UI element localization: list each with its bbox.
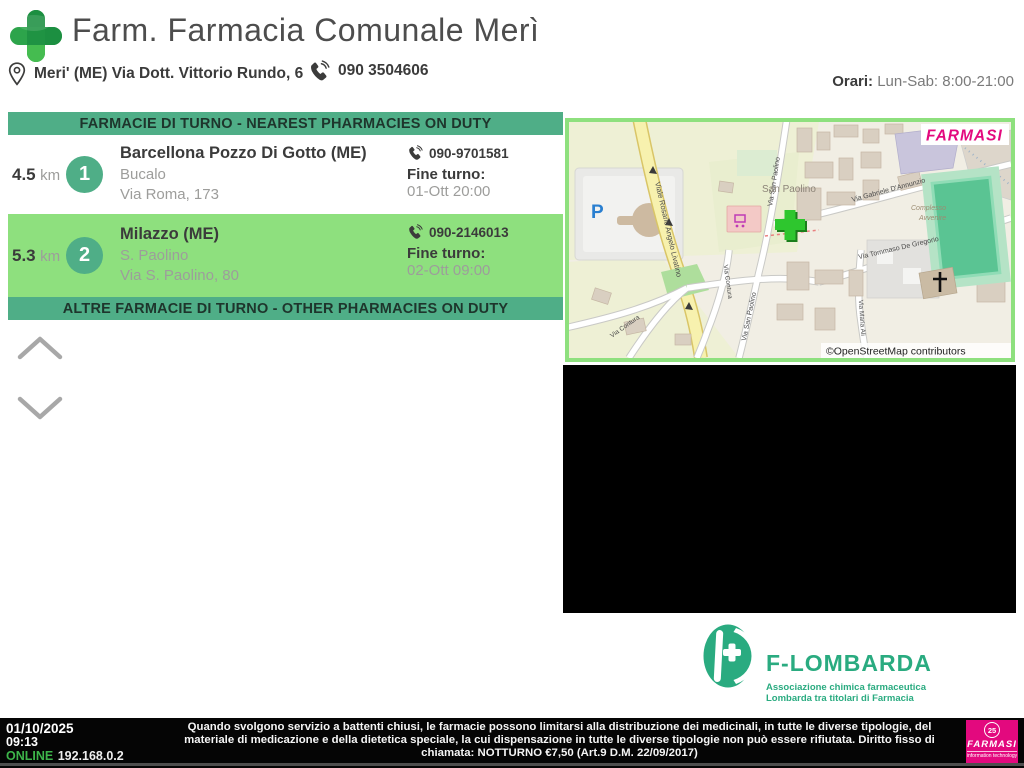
pharmacy-address: Meri' (ME) Via Dott. Vittorio Rundo, 6 (34, 65, 303, 83)
association-subtitle-1: Associazione chimica farmaceutica (766, 682, 932, 693)
online-status: ONLINE (6, 749, 53, 763)
svg-text:©OpenStreetMap contributors: ©OpenStreetMap contributors (826, 346, 966, 358)
phone-icon (308, 60, 330, 82)
fine-turno-label: Fine turno: (407, 166, 563, 183)
page-title: Farm. Farmacia Comunale Merì (72, 12, 539, 49)
scroll-up-button[interactable] (10, 332, 70, 366)
pharmacy-row-2[interactable]: 5.3 km 2 Milazzo (ME) S. Paolino Via S. … (8, 214, 563, 297)
distance: 4.5 km (8, 165, 66, 185)
association-subtitle-2: Lombarda tra titolari di Farmacia (766, 693, 932, 704)
hours-label: Orari: (832, 73, 873, 90)
f-lombarda-logo: F-LOMBARDA Associazione chimica farmaceu… (703, 624, 932, 704)
on-duty-pharmacies-panel: FARMACIE DI TURNO - NEAREST PHARMACIES O… (8, 112, 563, 320)
brand-name: FARMASI (967, 739, 1017, 750)
brand-tagline: information technology (967, 751, 1017, 759)
pharmacy-street: Via S. Paolino, 80 (120, 266, 407, 286)
svg-text:FARMASI: FARMASI (926, 128, 1003, 145)
map-attribution: ©OpenStreetMap contributors (821, 343, 1011, 358)
ip-address: 192.168.0.2 (58, 749, 124, 763)
map: P (565, 118, 1015, 362)
pharmacy-street: Via Roma, 173 (120, 185, 407, 205)
svg-text:Complesso: Complesso (911, 205, 946, 212)
anniversary-badge: 25 (984, 722, 1000, 738)
f-lombarda-oval-icon (703, 624, 753, 688)
parking-label: P (591, 202, 604, 223)
map-place-label: San Paolino (762, 184, 816, 195)
chevron-up-icon (17, 335, 63, 361)
pharmacy-name: Bucalo (120, 165, 407, 185)
pharmacy-phone: 090-9701581 (429, 146, 509, 161)
pharmacy-cross-logo (8, 8, 64, 64)
video-placeholder (563, 365, 1016, 613)
chevron-down-icon (17, 395, 63, 421)
farmasi-logo: 25 FARMASI information technology (966, 720, 1018, 765)
phone-icon (407, 145, 423, 161)
hours-value: Lun-Sab: 8:00-21:00 (877, 73, 1014, 90)
location-pin-icon (8, 62, 26, 86)
fine-turno-label: Fine turno: (407, 245, 563, 262)
other-pharmacies-header: ALTRE FARMACIE DI TURNO - OTHER PHARMACI… (8, 297, 563, 320)
phone-icon (407, 224, 423, 240)
rank-badge: 1 (66, 156, 103, 193)
pharmacy-phone: 090-2146013 (429, 225, 509, 240)
association-name: F-LOMBARDA (766, 650, 932, 677)
svg-text:Avvenire: Avvenire (918, 215, 946, 222)
map-supermarket (727, 206, 761, 232)
map-watermark: FARMASI (921, 124, 1009, 145)
distance: 5.3 km (8, 246, 66, 266)
header: Farm. Farmacia Comunale Merì Meri' (ME) … (0, 0, 1024, 104)
status-time: 09:13 (6, 736, 124, 750)
rank-badge: 2 (66, 237, 103, 274)
bottom-divider (0, 763, 1024, 766)
pharmacy-city: Milazzo (ME) (120, 225, 407, 244)
map-church (919, 267, 957, 299)
pharmacy-name: S. Paolino (120, 246, 407, 266)
openstreetmap-canvas: P (569, 122, 1011, 358)
nearest-pharmacies-header: FARMACIE DI TURNO - NEAREST PHARMACIES O… (8, 112, 563, 135)
pharmacy-city: Barcellona Pozzo Di Gotto (ME) (120, 144, 407, 163)
status-bar: 01/10/2025 09:13 ONLINE 192.168.0.2 Quan… (0, 718, 1024, 768)
pharmacy-row-1[interactable]: 4.5 km 1 Barcellona Pozzo Di Gotto (ME) … (8, 135, 563, 214)
pharmacy-phone: 090 3504606 (338, 62, 429, 80)
fine-turno-time: 01-Ott 20:00 (407, 183, 563, 200)
opening-hours: Orari: Lun-Sab: 8:00-21:00 (832, 73, 1014, 90)
status-date: 01/10/2025 (6, 722, 124, 736)
fine-turno-time: 02-Ott 09:00 (407, 262, 563, 279)
service-notice: Quando svolgono servizio a battenti chiu… (162, 721, 957, 760)
scroll-down-button[interactable] (10, 392, 70, 426)
